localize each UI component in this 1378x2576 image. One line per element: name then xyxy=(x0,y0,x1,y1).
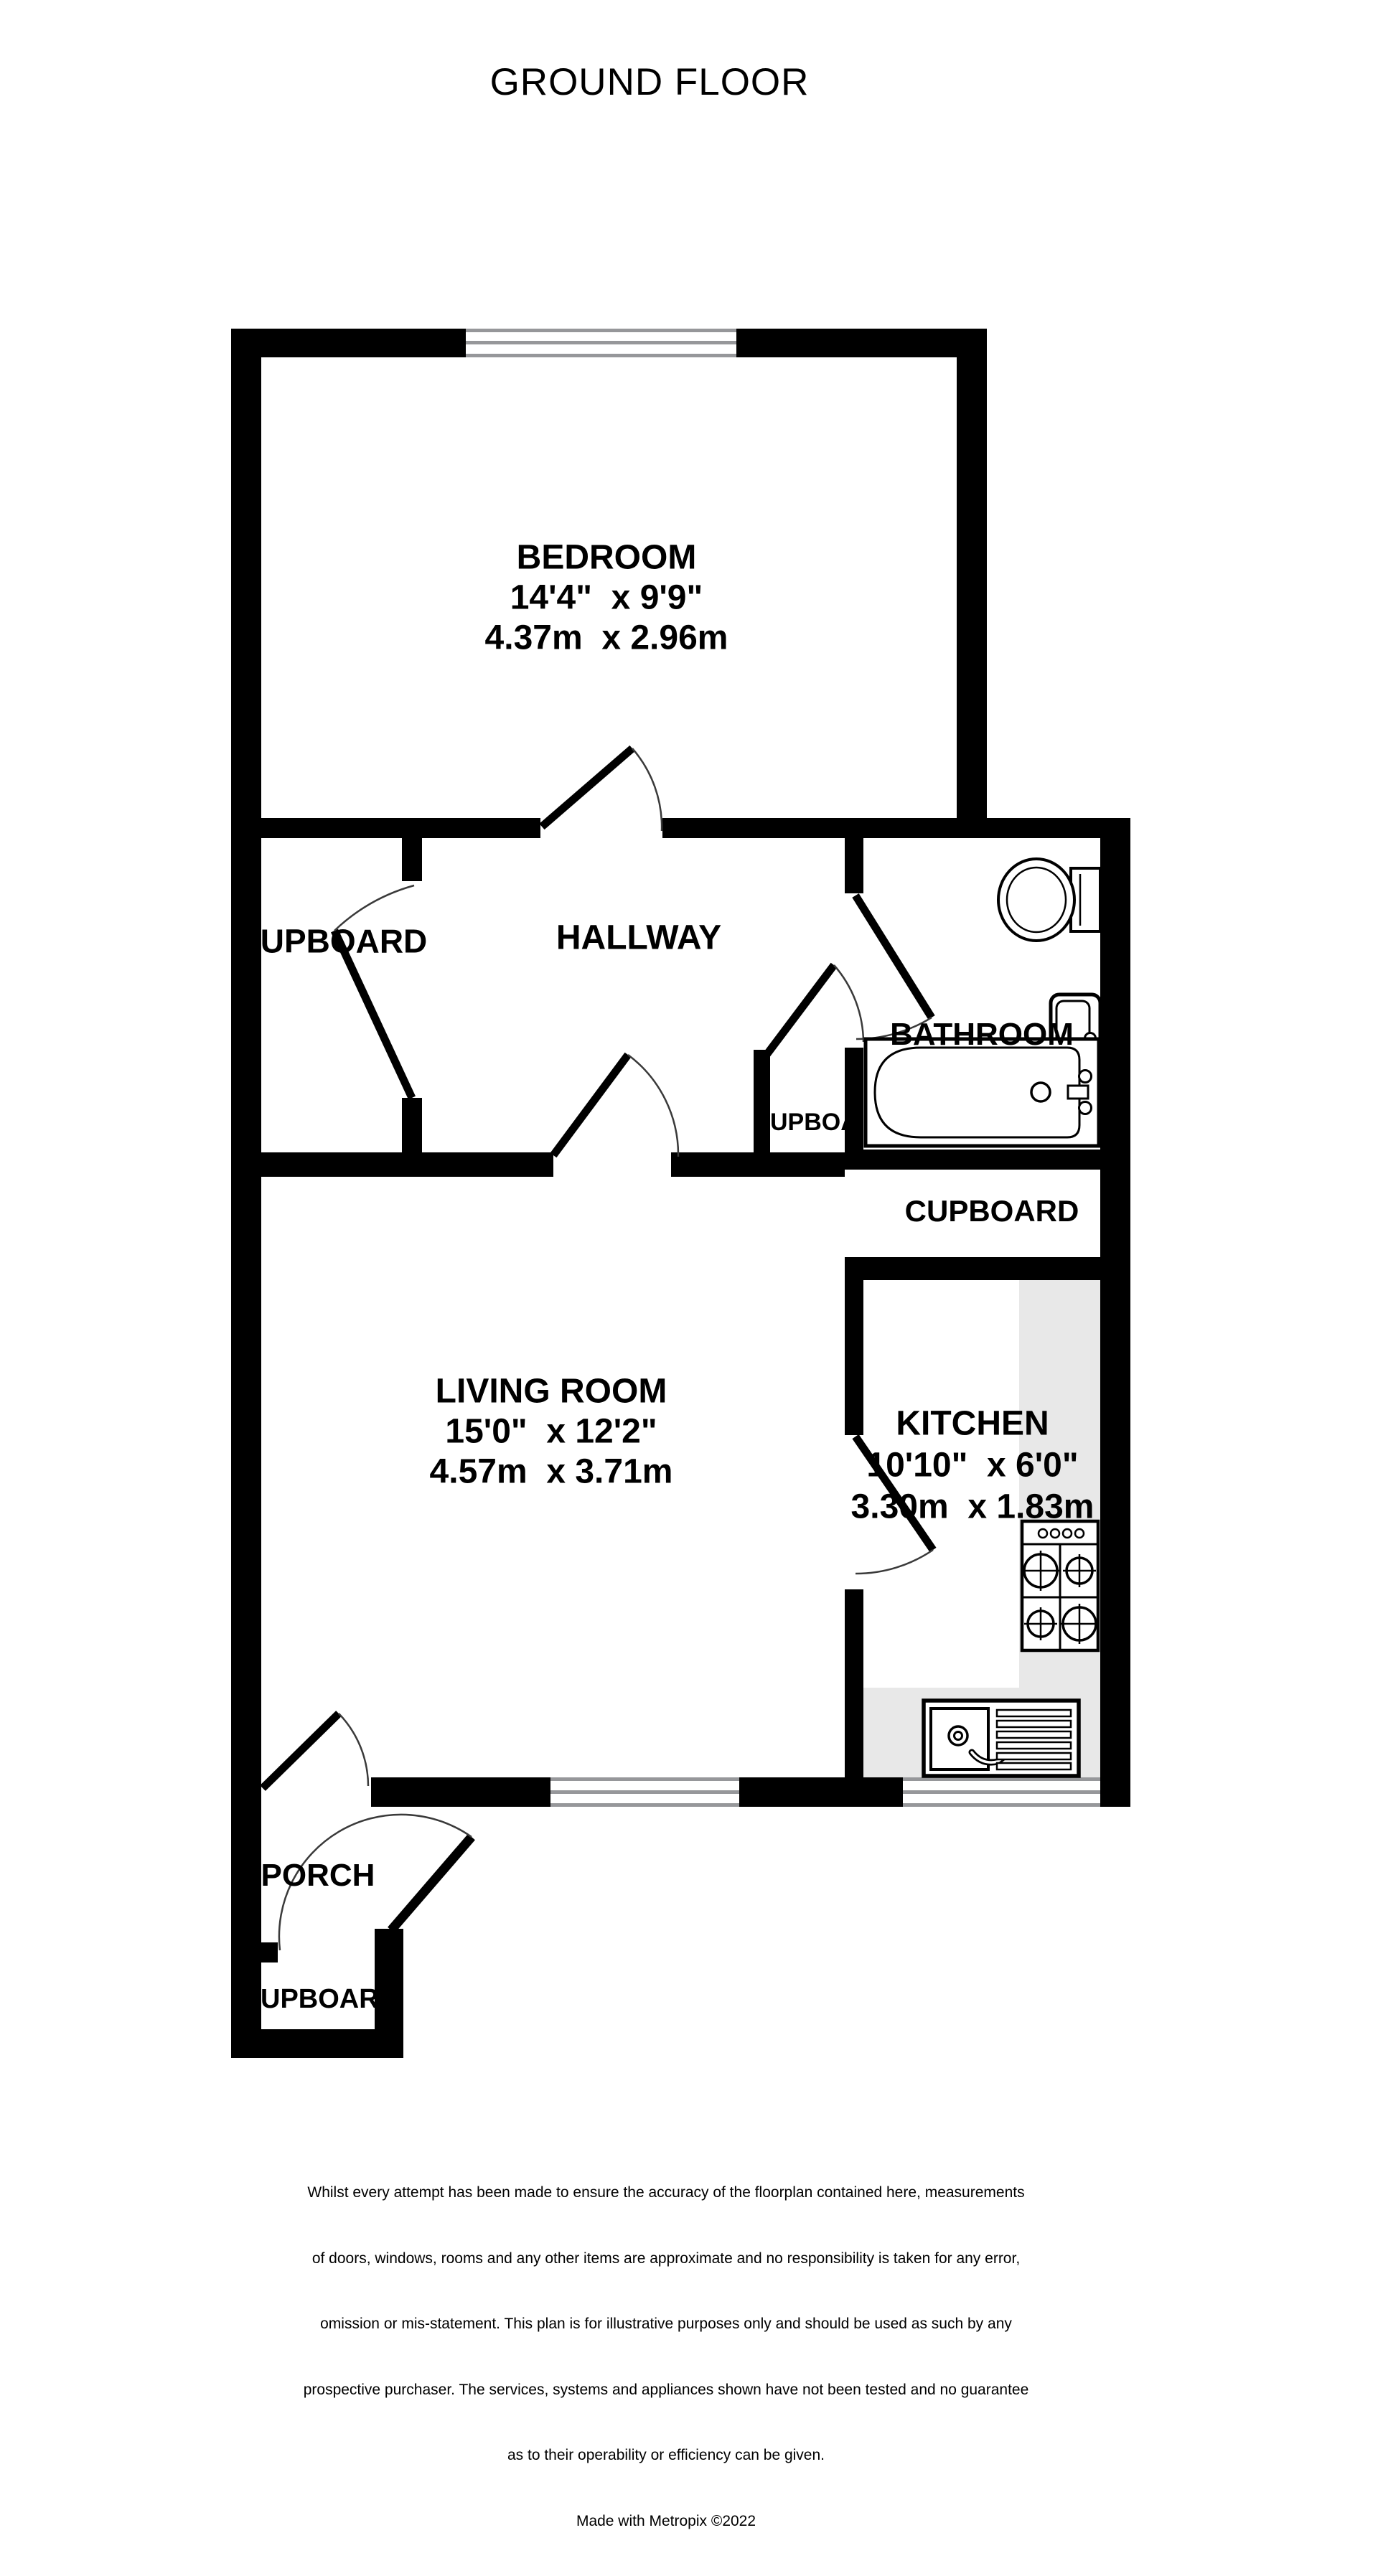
disclaimer-line: as to their operability or efficiency ca… xyxy=(304,2445,1029,2467)
floorplan-drawing xyxy=(0,0,1378,2290)
disclaimer-line: of doors, windows, rooms and any other i… xyxy=(304,2248,1029,2270)
floor-plan: GROUND FLOOR xyxy=(0,0,1378,2290)
toilet-icon xyxy=(998,859,1100,941)
kitchen-label: KITCHEN xyxy=(896,1406,1049,1444)
porch-label: PORCH xyxy=(261,1858,375,1893)
bathtub-icon xyxy=(866,1039,1099,1146)
disclaimer-line: prospective purchaser. The services, sys… xyxy=(304,2379,1029,2402)
small-cupboard-label: UPBOARD xyxy=(770,1106,863,1138)
mid-cupboard-label: CUPBOARD xyxy=(905,1195,1079,1228)
bedroom-label: BEDROOM xyxy=(517,540,697,578)
bedroom-window xyxy=(466,329,736,357)
bathroom-label: BATHROOM xyxy=(890,1017,1074,1052)
kitchen-window xyxy=(903,1777,1100,1807)
bedroom-dimensions: 14'4" x 9'9" xyxy=(510,580,703,618)
bedroom-dimensions-metric: 4.37m x 2.96m xyxy=(485,620,728,658)
disclaimer-line: Whilst every attempt has been made to en… xyxy=(304,2182,1029,2204)
living-room-dimensions: 15'0" x 12'2" xyxy=(445,1414,657,1452)
kitchen-sink-icon xyxy=(924,1701,1079,1776)
kitchen-dimensions-metric: 3.30m x 1.83m xyxy=(851,1489,1095,1527)
living-room-label: LIVING ROOM xyxy=(436,1373,667,1411)
stove-icon xyxy=(1021,1521,1100,1650)
hall-cupboard-label: UPBOARD xyxy=(261,923,428,960)
hall-cupboard-door xyxy=(334,885,414,1098)
small-cupboard-door xyxy=(762,965,863,1061)
kitchen-dimensions: 10'10" x 6'0" xyxy=(866,1447,1078,1485)
living-room-door xyxy=(553,1055,678,1157)
porch-cupboard-label: UPBOARD xyxy=(261,1983,375,2015)
disclaimer-line: omission or mis-statement. This plan is … xyxy=(304,2313,1029,2336)
living-room-window xyxy=(550,1777,739,1807)
disclaimer: Whilst every attempt has been made to en… xyxy=(304,2138,1029,2576)
bedroom-door xyxy=(542,748,662,831)
porch-inner-door xyxy=(263,1714,368,1788)
living-room-dimensions-metric: 4.57m x 3.71m xyxy=(430,1454,673,1492)
metropix-credit: Made with Metropix ©2022 xyxy=(304,2511,1029,2533)
hallway-label: HALLWAY xyxy=(556,920,721,958)
